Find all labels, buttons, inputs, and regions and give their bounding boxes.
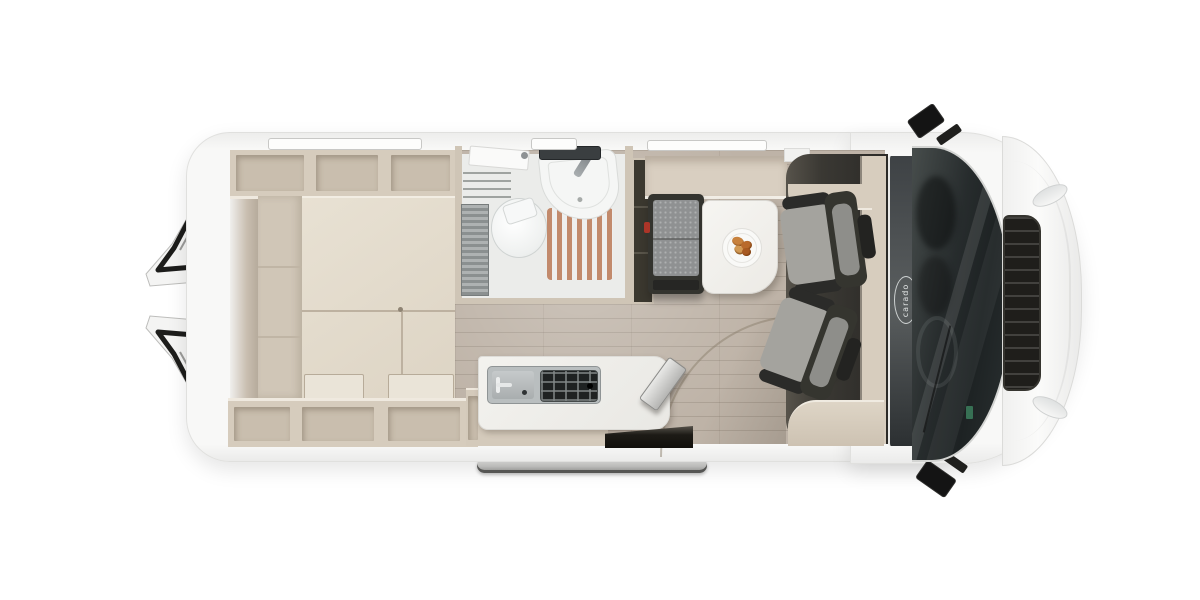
passenger-seat-swiveled: [775, 186, 880, 298]
bench-cushion: [653, 200, 699, 276]
hood: [1002, 136, 1082, 466]
camper-van-floorplan: carado: [0, 0, 1200, 600]
lower-shelf-row: [228, 398, 478, 447]
seatbelt-buckle: [644, 222, 650, 233]
bed-button: [398, 307, 403, 312]
bed-side-shelf: [258, 196, 305, 398]
brand-logo-text: carado: [902, 283, 911, 316]
plate: [722, 228, 762, 268]
overhead-locker-rear: [230, 150, 455, 199]
roof-window-rear: [268, 138, 422, 150]
two-burner-hob: [540, 370, 598, 402]
grille: [1003, 215, 1041, 391]
toilet: [491, 198, 547, 258]
sink-drain: [522, 390, 527, 395]
bed-cushion-seam-h: [302, 310, 455, 312]
bedding-left: [304, 374, 364, 400]
roof-window-middle: [531, 138, 577, 150]
bedding-right: [388, 374, 454, 400]
sink-hob-unit: [487, 366, 601, 404]
rear-bedroom: [230, 150, 455, 398]
kitchen-sink: [492, 371, 534, 399]
bathroom: [455, 146, 633, 304]
bathroom-wall-bottom: [455, 298, 633, 304]
hob-knob: [587, 383, 593, 389]
bathroom-door-hinge: [521, 152, 528, 159]
dinette-bench: [648, 194, 704, 294]
shower-screen-folded: [461, 204, 489, 296]
towel-rack: [463, 172, 511, 198]
bed-platform: [302, 196, 455, 400]
dash-reflection: [918, 256, 952, 316]
pastry: [742, 248, 751, 256]
windshield-sticker: [966, 406, 973, 419]
roof-window-front: [647, 140, 767, 151]
dash-reflection: [916, 176, 956, 250]
toilet-lid: [502, 197, 539, 226]
